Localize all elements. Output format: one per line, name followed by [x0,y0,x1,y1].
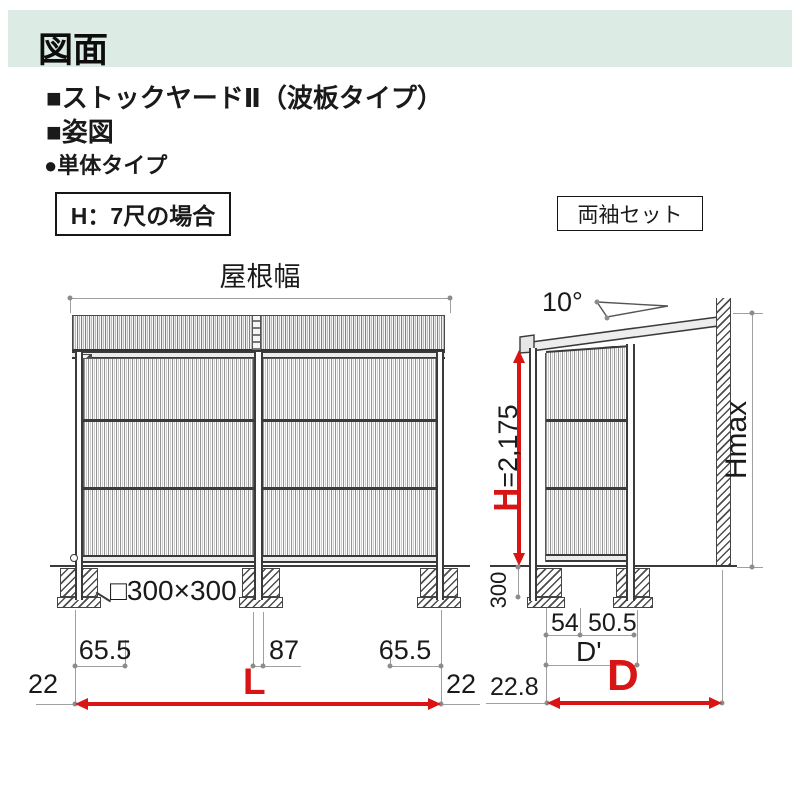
ext-line [546,608,547,704]
front-post-center [254,352,263,600]
dim-label-50-5: 50.5 [588,610,637,638]
dim-dot [750,311,755,316]
height-case-label: H：7尺の場合 [71,197,215,231]
roof-angle-label: 10° [542,288,583,318]
dim-line-300 [518,567,519,598]
side-wall-panel [545,346,631,562]
sleeve-set-label: 両袖セット [578,199,683,229]
dim-label-22-left: 22 [28,670,58,700]
dim-label-L: L [243,662,266,703]
side-bottom-rail [546,554,631,562]
roof-width-dim-line [70,298,451,299]
dim-label-22-8: 22.8 [490,674,539,702]
ext-line [722,570,723,704]
arrowhead-right [709,697,722,709]
height-letter: H [487,488,524,512]
front-post-right [436,352,444,600]
hmax-label: Hmax [720,401,754,479]
roof-center-joint [252,316,261,350]
dim-dot [448,296,453,301]
side-rail-upper [546,419,631,422]
dim-dot [595,300,600,305]
dim-label-87: 87 [258,636,310,666]
view-heading: ■姿図 [46,118,114,147]
dim-label-65-left: 65.5 [70,636,140,666]
roof-width-label: 屋根幅 [180,263,340,293]
total-depth-arrow-line [558,701,711,705]
header-band: 図面 [8,10,792,67]
ext-line [253,612,254,667]
front-post-left [75,352,83,600]
front-wall-panel-left [83,358,254,560]
dim-dot [544,663,549,668]
roof-angle-wedge [597,302,668,317]
dim-dot [605,316,610,321]
dim-label-d-prime: D' [576,637,602,668]
height-value: =2,175 [493,404,523,487]
dim-dot [750,565,755,570]
dim-line-22-8 [486,703,547,704]
hmax-tick-top [733,313,763,314]
side-ground-line [490,565,737,567]
dim-dot [516,595,521,600]
dim-line-22-right [441,704,480,705]
dim-dot [516,565,521,570]
sleeve-set-box: 両袖セット [557,196,703,231]
dim-line-22-left [36,704,75,705]
type-heading: ●単体タイプ [44,154,167,178]
post-base-bolt [70,554,78,562]
product-heading: ■ストックヤードⅡ（波板タイプ） [46,84,443,113]
foundation-size-label: □300×300 [110,576,237,607]
arrowhead-left [75,698,88,710]
side-post-front [529,348,537,601]
dim-label-22-right: 22 [446,670,476,700]
dim-dot [544,633,549,638]
ext-line [580,608,581,635]
dim-line-65-left [75,666,126,667]
dim-label-65-right: 65.5 [370,636,440,666]
page-title: 図面 [38,22,108,73]
dim-label-D: D [607,652,639,700]
arrowhead-right [428,698,441,710]
ext-line [441,610,442,706]
side-rail-lower [546,487,631,490]
dim-line-65-right [390,666,442,667]
height-case-box: H：7尺の場合 [55,192,231,236]
drawing-page: 図面 ■ストックヤードⅡ（波板タイプ） ■姿図 ●単体タイプ H：7尺の場合 両… [0,0,800,800]
dim-label-54: 54 [551,610,579,638]
front-wall-panel-right [262,358,437,560]
dim-label-300: 300 [486,572,512,609]
side-post-rear [626,344,635,601]
arrowhead-left [547,697,560,709]
dim-dot [68,296,73,301]
height-dim-label: H=2,175 [487,404,525,511]
